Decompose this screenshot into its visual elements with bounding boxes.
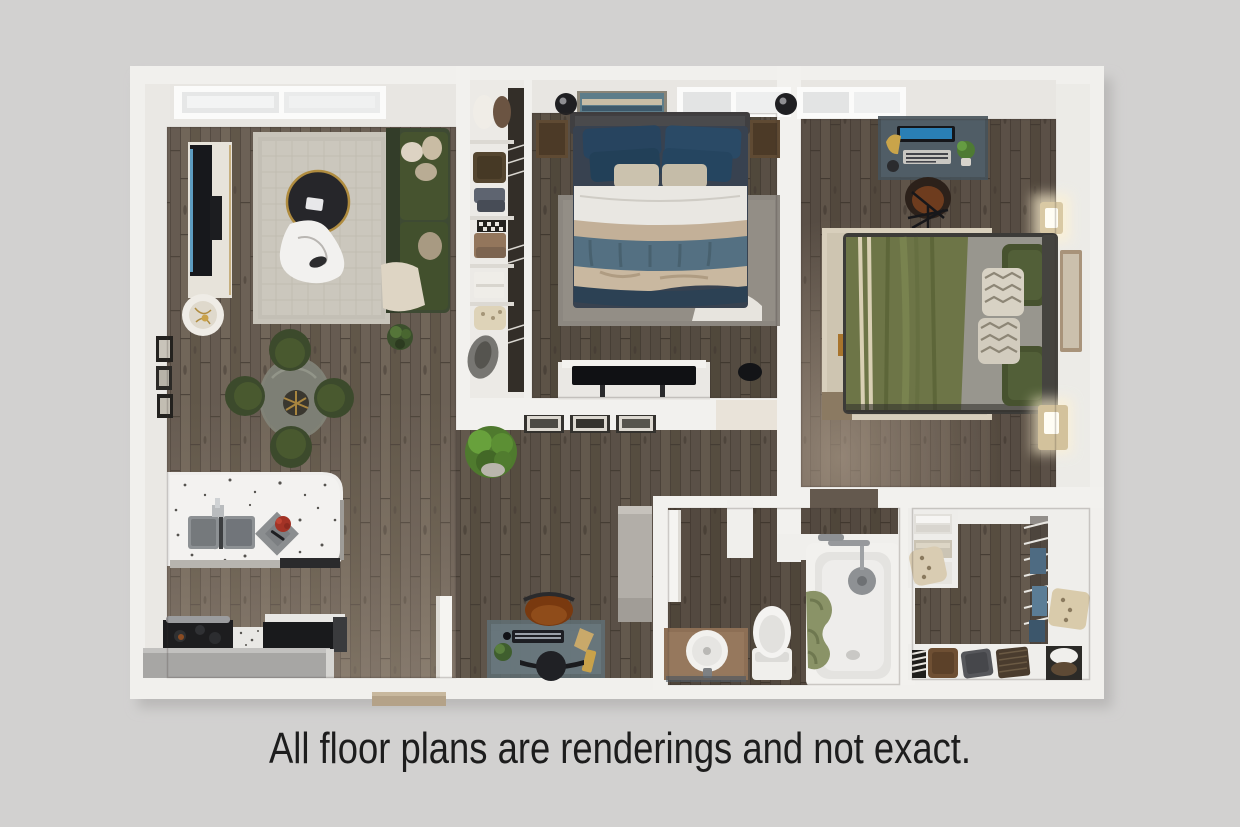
svg-text:All floor plans are renderings: All floor plans are renderings and not e… xyxy=(269,724,971,773)
